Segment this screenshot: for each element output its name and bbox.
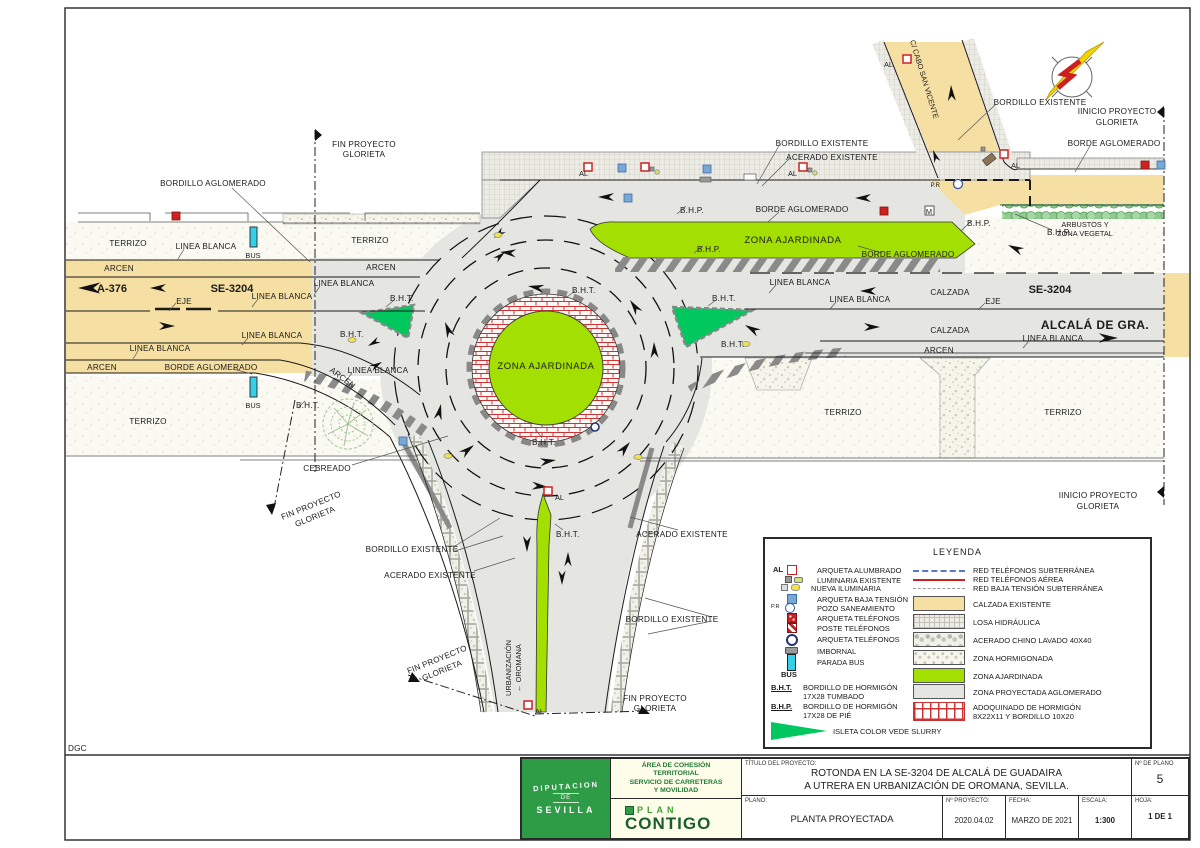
fecha-label: FECHA: xyxy=(1009,798,1031,804)
legend: LEYENDA AL ARQUETA ALUMBRADO LUMINARIA E… xyxy=(763,537,1152,749)
plano-label: PLANO: xyxy=(745,798,767,804)
arqueta-telefonos-circle-icon xyxy=(786,634,798,646)
label-linea-blanca: LINEA BLANCA xyxy=(314,279,375,288)
label-borde-aglomerado: BORDE AGLOMERADO xyxy=(1068,139,1161,148)
label-zona-ajardinada: ZONA AJARDINADA xyxy=(497,361,594,372)
zona-ajardinada-swatch xyxy=(913,668,965,683)
label-bhp: B.H.P. xyxy=(967,219,991,228)
legend-item-label: PARADA BUS xyxy=(817,659,864,667)
escala-label: ESCALA: xyxy=(1082,798,1107,804)
label-bhp: B.H.P. xyxy=(680,206,704,215)
label-arcen: ARCEN xyxy=(924,346,954,355)
pozo-saneamiento-icon xyxy=(785,603,795,613)
red-telefonos-subterranea-line xyxy=(913,570,965,572)
label-linea-blanca: LINEA BLANCA xyxy=(242,331,303,340)
label-al: AL xyxy=(579,169,588,178)
label-arcen: ARCEN xyxy=(104,264,134,273)
label-al: AL xyxy=(788,169,797,178)
label-urbanizacion: URBANIZACIÓN xyxy=(504,640,513,696)
legend-al-prefix: AL xyxy=(773,566,783,574)
label-al: AL xyxy=(535,707,544,716)
label-fin-proyecto: GLORIETA xyxy=(634,704,677,713)
label-fin-proyecto: FIN PROYECTO xyxy=(332,140,396,149)
logo-text: SEVILLA xyxy=(536,805,595,815)
label-linea-blanca: LINEA BLANCA xyxy=(176,242,237,251)
legend-line-label: RED TELÉFONOS SUBTERRÁNEA xyxy=(973,567,1095,575)
org-line: SERVICIO DE CARRETERAS xyxy=(611,779,741,787)
isleta-verde-icon xyxy=(771,722,827,740)
legend-pr-prefix: P.R xyxy=(771,605,779,611)
num-plano-value: 5 xyxy=(1132,772,1188,786)
label-bht: B.H.T. xyxy=(712,294,736,303)
label-acerado-existente: ACERADO EXISTENTE xyxy=(384,571,476,580)
legend-item-label: POZO SANEAMIENTO xyxy=(817,605,895,613)
label-al: AL xyxy=(884,60,893,69)
nueva-iluminaria-icon xyxy=(781,584,800,593)
label-acerado-existente: ACERADO EXISTENTE xyxy=(636,530,728,539)
title-block: DIPUTACION DE SEVILLA ÁREA DE COHESIÓN T… xyxy=(520,757,1190,840)
num-proyecto-cell: Nº PROYECTO: 2020.04.02 xyxy=(942,796,1005,838)
label-acerado-existente: ACERADO EXISTENTE xyxy=(786,153,878,162)
label-calzada: CALZADA xyxy=(930,288,970,297)
escala-value: 1:300 xyxy=(1079,816,1131,825)
label-bordillo-existente: BORDILLO EXISTENTE xyxy=(776,139,869,148)
plan-contigo-logo: PLAN CONTIGO xyxy=(611,799,741,838)
label-bht: B.H.T. xyxy=(572,286,596,295)
label-inicio-proyecto: GLORIETA xyxy=(1096,118,1139,127)
legend-item-label: NUEVA ILUMINARIA xyxy=(811,585,881,593)
legend-area-label: LOSA HIDRÁULICA xyxy=(973,619,1040,627)
arqueta-alumbrado-icon xyxy=(787,565,797,575)
legend-isleta-label: ISLETA COLOR VEDE SLURRY xyxy=(833,728,942,736)
legend-item-label: ARQUETA TELÉFONOS xyxy=(817,615,900,623)
label-inicio-proyecto: IINICIO PROYECTO xyxy=(1059,491,1138,500)
label-bordillo-aglomerado: BORDILLO AGLOMERADO xyxy=(160,179,266,188)
label-eje: EJE xyxy=(176,297,192,306)
fecha-value: MARZO DE 2021 xyxy=(1006,816,1078,825)
legend-bhp-def: 17X28 DE PIÉ xyxy=(803,712,851,720)
label-borde-aglomerado: BORDE AGLOMERADO xyxy=(165,363,258,372)
legend-item-label: IMBORNAL xyxy=(817,648,856,656)
label-bus: BUS xyxy=(245,251,260,260)
label-bhp: B.H.P. xyxy=(697,245,721,254)
label-terrizo: TERRIZO xyxy=(351,236,388,245)
legend-bhp-def: BORDILLO DE HORMIGÓN xyxy=(803,703,898,711)
legend-area-label: 8X22X11 Y BORDILLO 10X20 xyxy=(973,713,1074,721)
losa-hidraulica-swatch xyxy=(913,614,965,629)
num-plano-cell: Nº DE PLANO 5 xyxy=(1132,759,1188,796)
label-a376: A-376 xyxy=(97,283,127,295)
label-bht: B.H.T. xyxy=(556,530,580,539)
legend-bhp-term: B.H.P. xyxy=(771,703,792,711)
imbornal-icon xyxy=(700,177,711,182)
org-line: Y MOVILIDAD xyxy=(611,787,741,795)
label-linea-blanca: LINEA BLANCA xyxy=(130,344,191,353)
label-bht: B.H.T. xyxy=(532,438,556,447)
escala-cell: ESCALA: 1:300 xyxy=(1078,796,1131,838)
legend-area-label: ZONA PROYECTADA AGLOMERADO xyxy=(973,689,1102,697)
label-linea-blanca: LINEA BLANCA xyxy=(1023,334,1084,343)
red-baja-tension-line xyxy=(913,588,965,589)
adoquinado-swatch xyxy=(913,702,965,721)
label-linea-blanca: LINEA BLANCA xyxy=(348,366,409,375)
label-m: M xyxy=(926,207,932,216)
legend-bus-prefix: BUS xyxy=(781,671,797,679)
label-inicio-proyecto: IINICIO PROYECTO xyxy=(1078,107,1157,116)
legend-bht-term: B.H.T. xyxy=(771,684,792,692)
label-terrizo: TERRIZO xyxy=(824,408,861,417)
label-se3204: SE-3204 xyxy=(1029,284,1073,296)
legend-area-label: ACERADO CHINO LAVADO 40X40 xyxy=(973,637,1092,645)
label-bhp: B.H.P. xyxy=(1047,228,1071,237)
label-linea-blanca: LINEA BLANCA xyxy=(770,278,831,287)
label-zona-ajardinada: ZONA AJARDINADA xyxy=(744,235,841,246)
num-plano-label: Nº DE PLANO xyxy=(1135,761,1174,767)
label-arcen: ARCEN xyxy=(87,363,117,372)
legend-title: LEYENDA xyxy=(933,548,982,557)
poste-telefonos-icon xyxy=(787,623,797,633)
pozo-saneamiento-icon xyxy=(954,180,963,189)
plano-value: PLANTA PROYECTADA xyxy=(742,814,942,825)
calzada-existente-swatch xyxy=(913,596,965,611)
label-bordillo-existente: BORDILLO EXISTENTE xyxy=(366,545,459,554)
num-proyecto-label: Nº PROYECTO: xyxy=(946,798,989,804)
cebreado-hatch xyxy=(615,257,940,272)
label-bht: B.H.T. xyxy=(721,340,745,349)
legend-item-label: ARQUETA ALUMBRADO xyxy=(817,567,901,575)
legend-item-label: POSTE TELÉFONOS xyxy=(817,625,890,633)
project-title-cell: TÍTULO DEL PROYECTO: ROTONDA EN LA SE-32… xyxy=(742,759,1131,796)
hoja-cell: HOJA: 1 DE 1 xyxy=(1132,796,1188,838)
legend-area-label: ADOQUINADO DE HORMIGÓN xyxy=(973,704,1081,712)
fecha-cell: FECHA: MARZO DE 2021 xyxy=(1005,796,1078,838)
legend-line-label: RED TELÉFONOS AÉREA xyxy=(973,576,1063,584)
label-oromana: ← OROMANA xyxy=(514,644,523,692)
project-title-line: ROTONDA EN LA SE-3204 DE ALCALÁ DE GUADA… xyxy=(742,767,1131,780)
red-telefonos-aerea-line xyxy=(913,579,965,581)
hoja-label: HOJA: xyxy=(1135,798,1153,804)
label-linea-blanca: LINEA BLANCA xyxy=(252,292,313,301)
label-bht: B.H.T. xyxy=(296,401,320,410)
label-alcala: ALCALÁ DE GRA. xyxy=(1041,317,1149,332)
acerado-chino-swatch xyxy=(913,632,965,647)
label-se3204: SE-3204 xyxy=(211,283,255,295)
label-bus: BUS xyxy=(245,401,260,410)
parada-bus-icon xyxy=(787,654,796,671)
contigo-text: CONTIGO xyxy=(625,815,741,832)
label-inicio-proyecto: GLORIETA xyxy=(1077,502,1120,511)
label-fin-proyecto: FIN PROYECTO xyxy=(623,694,687,703)
legend-area-label: CALZADA EXISTENTE xyxy=(973,601,1051,609)
legend-area-label: ZONA HORMIGONADA xyxy=(973,655,1053,663)
label-eje: EJE xyxy=(985,297,1001,306)
plano-cell: PLANO: PLANTA PROYECTADA xyxy=(742,796,942,838)
label-pr: P.R xyxy=(930,182,940,189)
org-department: ÁREA DE COHESIÓN TERRITORIAL SERVICIO DE… xyxy=(611,759,741,799)
legend-area-label: ZONA AJARDINADA xyxy=(973,673,1043,681)
label-bordillo-existente: BORDILLO EXISTENTE xyxy=(626,615,719,624)
num-proyecto-value: 2020.04.02 xyxy=(943,816,1005,825)
legend-item-label: ARQUETA BAJA TENSIÓN xyxy=(817,596,908,604)
org-line: TERRITORIAL xyxy=(611,770,741,778)
plan-sheet: BORDILLO AGLOMERADO TERRIZO TERRIZO TERR… xyxy=(0,0,1200,848)
label-al: AL xyxy=(555,493,564,502)
imbornal-icon xyxy=(785,647,798,654)
label-dgc: DGC xyxy=(68,744,87,753)
legend-line-label: RED BAJA TENSIÓN SUBTERRÁNEA xyxy=(973,585,1103,593)
label-fin-proyecto: GLORIETA xyxy=(343,150,386,159)
org-line: ÁREA DE COHESIÓN xyxy=(611,762,741,770)
hoja-value: 1 DE 1 xyxy=(1132,812,1188,821)
arqueta-telefonos-circle-icon xyxy=(591,423,599,431)
logo-text: DE xyxy=(553,793,579,803)
diputacion-sevilla-logo: DIPUTACION DE SEVILLA xyxy=(522,759,611,838)
label-terrizo: TERRIZO xyxy=(1044,408,1081,417)
label-cebreado: CEBREADO xyxy=(303,464,351,473)
label-al: AL xyxy=(1011,161,1020,170)
zona-proyectada-swatch xyxy=(913,684,965,699)
label-bht: B.H.T. xyxy=(390,294,414,303)
label-arcen: ARCEN xyxy=(366,263,396,272)
legend-bht-def: BORDILLO DE HORMIGÓN xyxy=(803,684,898,692)
label-terrizo: TERRIZO xyxy=(129,417,166,426)
label-borde-aglomerado: BORDE AGLOMERADO xyxy=(862,250,955,259)
label-calzada: CALZADA xyxy=(930,326,970,335)
zona-hormigonada-swatch xyxy=(913,650,965,665)
legend-item-label: ARQUETA TELÉFONOS xyxy=(817,636,900,644)
label-borde-aglomerado: BORDE AGLOMERADO xyxy=(756,205,849,214)
legend-bht-def: 17X28 TUMBADO xyxy=(803,693,864,701)
label-linea-blanca: LINEA BLANCA xyxy=(830,295,891,304)
logo-text: DIPUTACION xyxy=(533,780,600,794)
label-bordillo-existente: BORDILLO EXISTENTE xyxy=(994,98,1087,107)
label-bht: B.H.T. xyxy=(340,330,364,339)
imbornal-icon xyxy=(744,174,756,180)
project-title-line: A UTRERA EN URBANIZACIÓN DE OROMANA, SEV… xyxy=(742,780,1131,793)
label-terrizo: TERRIZO xyxy=(109,239,146,248)
arqueta-telefonos-icon xyxy=(787,613,797,623)
